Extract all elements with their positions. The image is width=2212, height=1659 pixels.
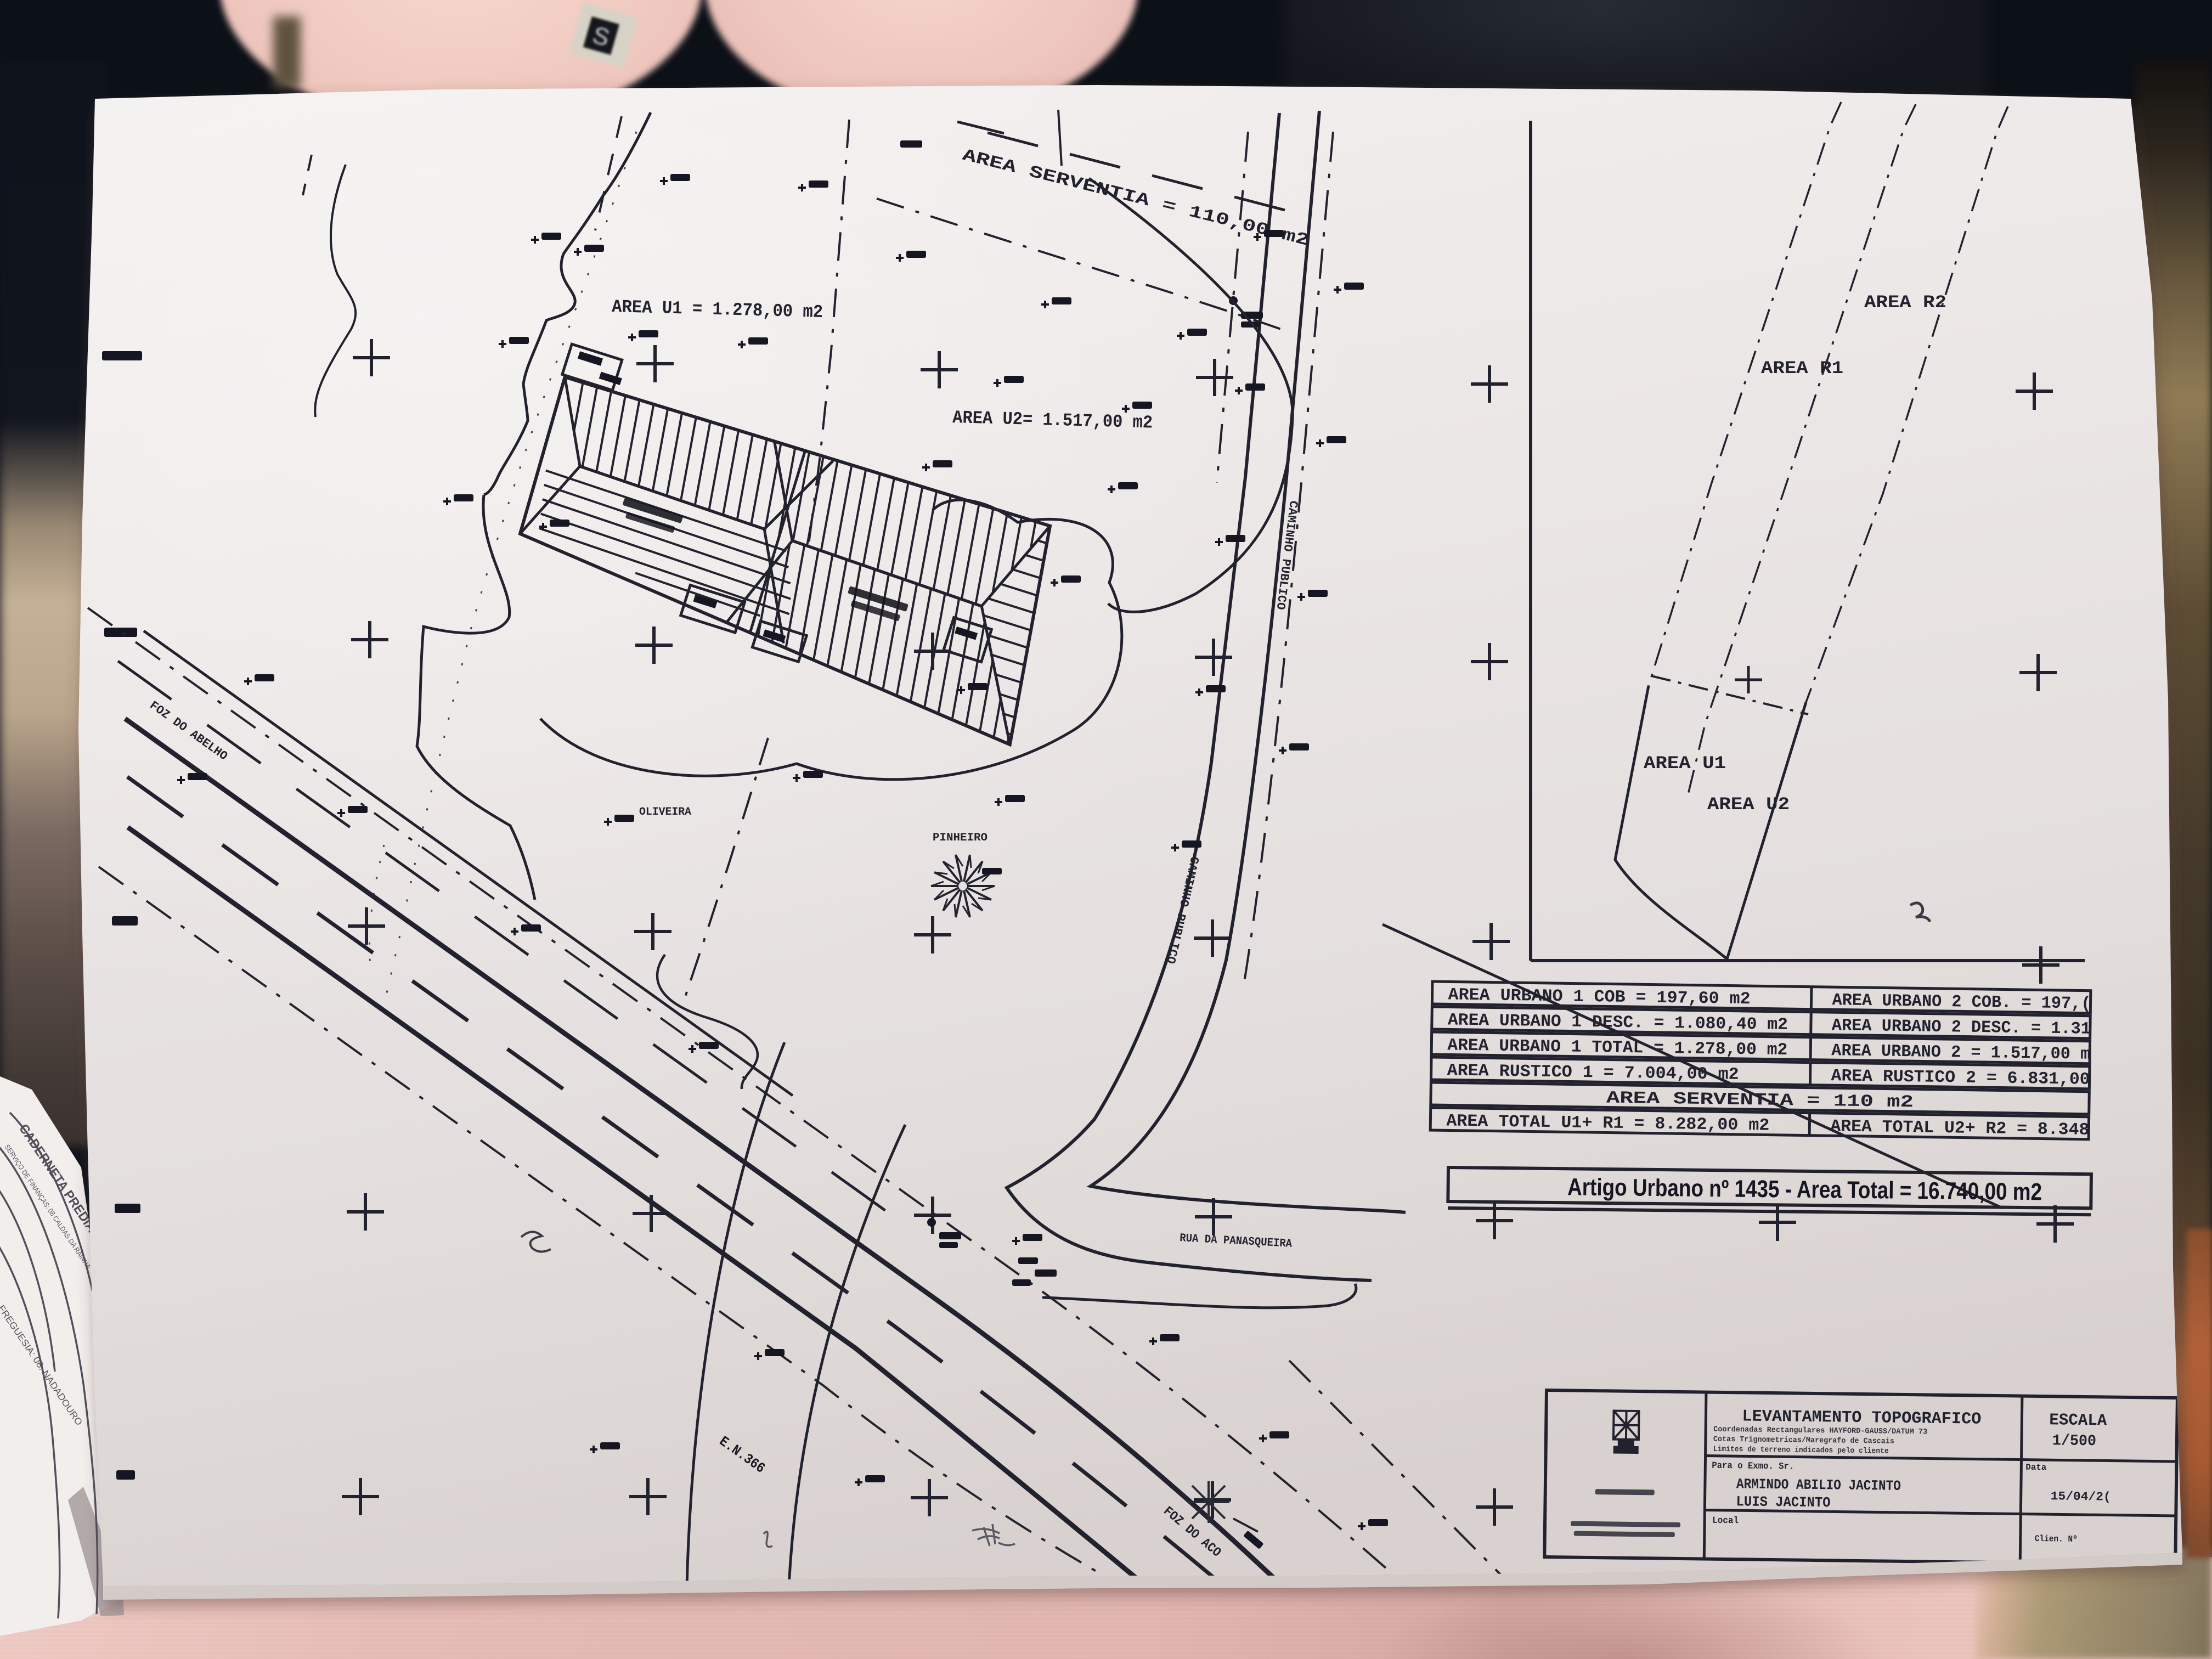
svg-text:Data: Data xyxy=(2025,1463,2047,1472)
svg-text:15/04/2(: 15/04/2( xyxy=(2051,1489,2111,1504)
svg-text:AREA URBANO 2 DESC. = 1.31: AREA URBANO 2 DESC. = 1.31 xyxy=(1832,1016,2091,1039)
svg-text:Artigo Urbano nº 1435 - Area T: Artigo Urbano nº 1435 - Area Total = 16.… xyxy=(1567,1173,2042,1205)
svg-text:AREA URBANO 2 = 1.517,00 m: AREA URBANO 2 = 1.517,00 m xyxy=(1831,1041,2090,1064)
svg-text:Local: Local xyxy=(1712,1516,1739,1527)
svg-text:PINHEIRO: PINHEIRO xyxy=(933,832,988,844)
svg-text:AREA TOTAL U2+ R2 = 8.348: AREA TOTAL U2+ R2 = 8.348 xyxy=(1830,1117,2089,1140)
svg-text:LUIS JACINTO: LUIS JACINTO xyxy=(1736,1493,1830,1511)
svg-text:AREA R1: AREA R1 xyxy=(1761,358,1843,379)
svg-text:ARMINDO ABILIO JACINTO: ARMINDO ABILIO JACINTO xyxy=(1736,1476,1901,1494)
svg-text:OLIVEIRA: OLIVEIRA xyxy=(639,806,691,819)
svg-text:Para o Exmo. Sr.: Para o Exmo. Sr. xyxy=(1712,1461,1794,1472)
svg-text:1/500: 1/500 xyxy=(2052,1432,2096,1450)
svg-text:AREA RUSTICO 2 = 6.831,00: AREA RUSTICO 2 = 6.831,00 xyxy=(1831,1066,2090,1090)
svg-text:AREA R2: AREA R2 xyxy=(1864,292,1946,313)
svg-text:AREA URBANO 2 COB. = 197,(: AREA URBANO 2 COB. = 197,( xyxy=(1832,991,2091,1014)
svg-text:AREA RUSTICO 1 = 7.004,00 m2: AREA RUSTICO 1 = 7.004,00 m2 xyxy=(1447,1061,1739,1084)
svg-text:AREA U1: AREA U1 xyxy=(1644,753,1726,774)
svg-text:Clien. Nº: Clien. Nº xyxy=(2035,1534,2078,1544)
svg-text:AREA U2: AREA U2 xyxy=(1707,794,1790,815)
svg-text:ESCALA: ESCALA xyxy=(2049,1411,2107,1430)
